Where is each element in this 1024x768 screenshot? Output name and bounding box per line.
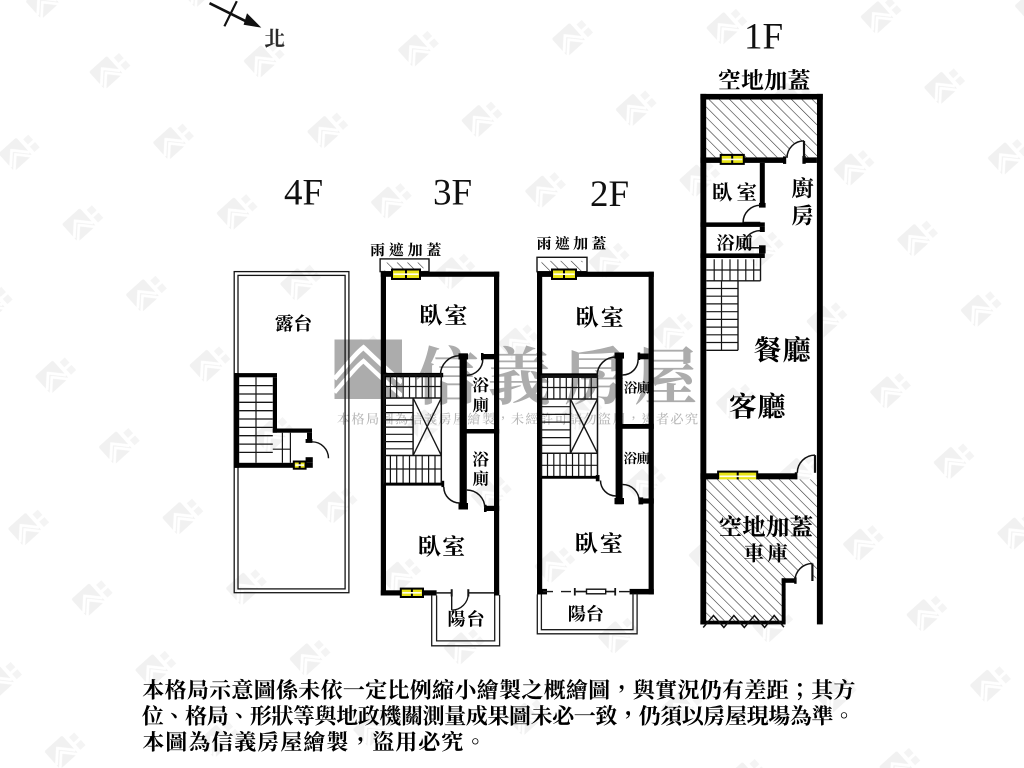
svg-text:3F: 3F	[433, 172, 472, 213]
svg-text:4F: 4F	[284, 172, 323, 213]
svg-text:2F: 2F	[590, 174, 629, 215]
svg-text:1F: 1F	[744, 17, 783, 58]
